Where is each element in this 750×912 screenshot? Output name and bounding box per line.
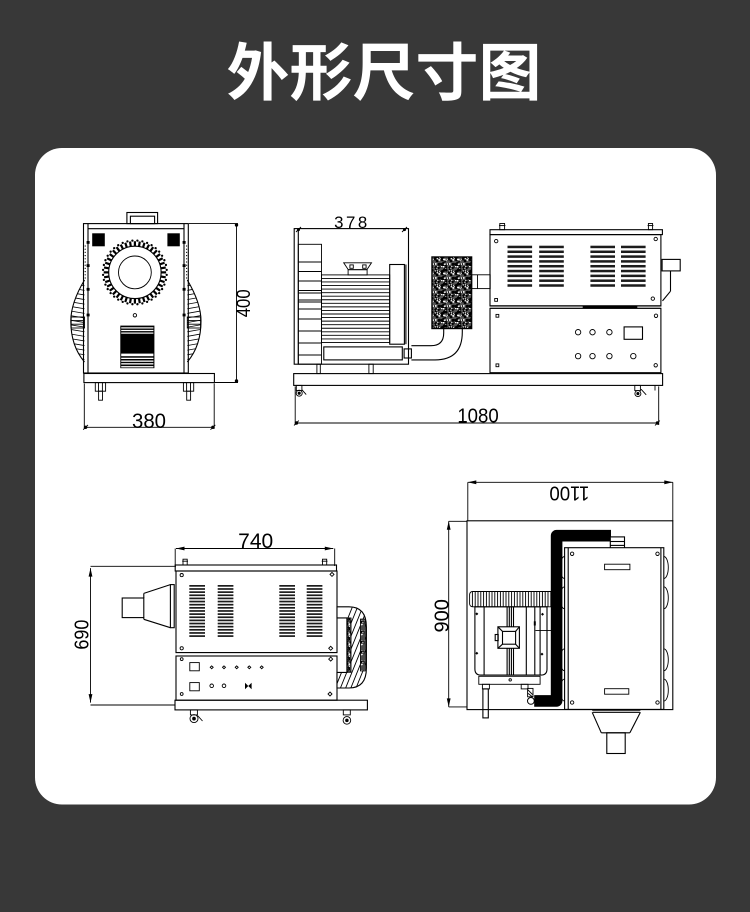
svg-text:380: 380 xyxy=(132,410,166,433)
svg-text:400: 400 xyxy=(233,289,254,317)
svg-text:378: 378 xyxy=(334,213,370,232)
svg-text:740: 740 xyxy=(238,530,273,553)
svg-text:1080: 1080 xyxy=(457,406,498,428)
svg-text:900: 900 xyxy=(431,599,453,632)
svg-text:690: 690 xyxy=(71,620,93,650)
svg-text:1100: 1100 xyxy=(549,481,589,503)
